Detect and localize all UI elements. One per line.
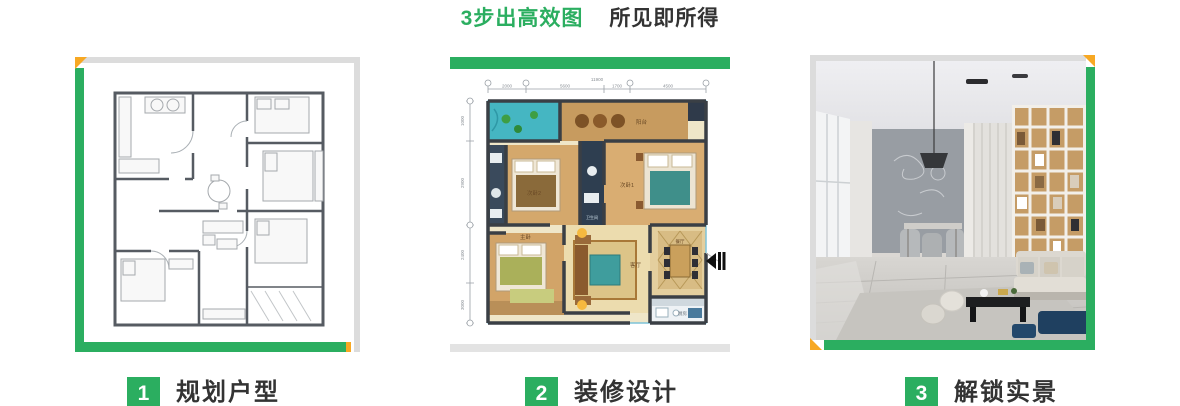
svg-text:1000: 1000 xyxy=(460,115,465,126)
color-floor-plan: 11900 2000 5600 1700 4500 1000 2900 2400… xyxy=(454,75,726,341)
svg-text:3000: 3000 xyxy=(460,299,465,310)
master-wardrobe xyxy=(488,301,564,315)
photo-sofa xyxy=(1014,251,1086,300)
photo-pouf-1 xyxy=(940,291,964,311)
room-planting-balcony xyxy=(488,101,560,141)
card1-orange-corner-icon xyxy=(75,57,87,69)
svg-text:4500: 4500 xyxy=(663,84,674,89)
label-kitchen: 厨房 xyxy=(678,310,687,317)
step-3: 3 解锁实景 xyxy=(905,377,1058,406)
label-bedroom2: 次卧2 xyxy=(527,189,541,197)
label-bathroom: 卫生间 xyxy=(586,214,598,220)
title-tagline: 所见即所得 xyxy=(609,7,719,30)
card1-green-bar-left xyxy=(75,68,84,352)
label-bedroom1: 次卧1 xyxy=(620,181,634,189)
card1-green-bar-bottom xyxy=(75,342,346,352)
card3-orange-corner-top-icon xyxy=(1083,55,1095,67)
step-1-label: 规划户型 xyxy=(176,377,280,406)
entrance-arrow-icon xyxy=(706,252,726,270)
bed-bedroom2 xyxy=(512,159,560,211)
card-color-plan: 11900 2000 5600 1700 4500 1000 2900 2400… xyxy=(450,57,730,352)
card3-green-bar-right xyxy=(1086,67,1095,350)
page-title: 3步出高效图所见即所得 xyxy=(0,2,1180,32)
photo-pouf-2 xyxy=(921,304,945,324)
cad-floor-plan xyxy=(99,81,339,339)
label-dining-room: 餐厅 xyxy=(676,238,685,245)
card2-border-bottom xyxy=(450,344,730,352)
photo-slat-panel xyxy=(964,123,1012,271)
card1-border-top xyxy=(75,57,360,63)
room-bathroom-mid xyxy=(580,141,604,225)
living-room-photo xyxy=(816,61,1086,340)
step-2-number-badge: 2 xyxy=(525,377,558,406)
photo-window xyxy=(816,111,850,269)
dimension-labels-left: 1000 2900 2400 3000 xyxy=(460,115,465,310)
label-living-room: 客厅 xyxy=(630,261,642,269)
card1-orange-accent xyxy=(346,342,351,352)
card-cad-plan xyxy=(75,57,360,352)
step-3-label: 解锁实景 xyxy=(954,377,1058,406)
svg-text:5600: 5600 xyxy=(560,84,571,89)
svg-text:2900: 2900 xyxy=(460,177,465,188)
svg-text:2000: 2000 xyxy=(502,84,513,89)
svg-text:2400: 2400 xyxy=(460,249,465,260)
step-1: 1 规划户型 xyxy=(127,377,280,406)
label-balcony: 阳台 xyxy=(636,118,648,126)
photo-wall-strip xyxy=(850,121,872,261)
card1-border-right xyxy=(354,57,360,352)
step-2-label: 装修设计 xyxy=(574,377,678,406)
title-highlight: 3步出高效图 xyxy=(461,7,584,30)
card2-green-bar-top xyxy=(450,57,730,69)
promo-section: 3步出高效图所见即所得 xyxy=(0,0,1180,406)
dim-total: 11900 xyxy=(591,77,604,82)
label-master-bedroom: 主卧 xyxy=(520,233,532,241)
dimension-lines-left xyxy=(466,98,474,326)
balcony-cabinet xyxy=(688,101,706,121)
step-3-number-badge: 3 xyxy=(905,377,938,406)
card3-orange-corner-bottom-icon xyxy=(810,338,822,350)
step-1-number-badge: 1 xyxy=(127,377,160,406)
card3-green-bar-bottom xyxy=(824,340,1095,350)
step-2: 2 装修设计 xyxy=(525,377,678,406)
svg-text:1700: 1700 xyxy=(612,84,623,89)
living-room-set xyxy=(574,228,636,310)
card-render-photo xyxy=(810,55,1095,350)
bed-bedroom1 xyxy=(636,153,696,209)
